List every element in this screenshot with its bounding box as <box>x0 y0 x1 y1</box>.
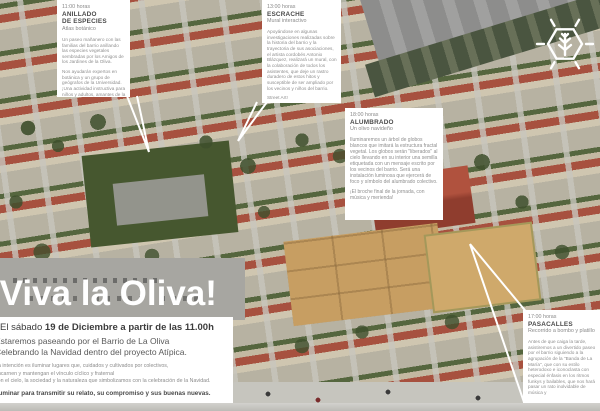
callout-time: 11:00 horas <box>62 4 126 11</box>
callout-anillado-de-especies: 11:00 horas ANILLADO DE ESPECIES Atlas b… <box>57 0 130 97</box>
fine-print-bold-line: Iluminar para transmitir su relato, su c… <box>0 389 228 398</box>
callout-paragraph: ¡El broche final de la jornada, con músi… <box>350 189 439 201</box>
fine-print-line: con el cielo, la sociedad y la naturalez… <box>0 378 228 386</box>
callout-paragraph: Nos ayudarán expertos en botánica y un g… <box>62 69 126 97</box>
callout-pasacalles: 17:00 horas PASACALLES Recorrido a bombo… <box>523 310 600 406</box>
event-info-panel: El sábado 19 de Diciembre a partir de la… <box>0 317 233 405</box>
fine-print-line: encarnen y mantengan el vínculo cíclico … <box>0 371 228 379</box>
callout-time: 13:00 horas <box>267 4 337 11</box>
callout-paragraph: Antes de que caiga la tarde, asistiremos… <box>528 339 596 395</box>
callout-title-line2: DE ESPECIES <box>62 18 126 26</box>
callout-alumbrado: 18:00 horas ALUMBRADO Un olivo navideño … <box>345 108 443 220</box>
callout-title: PASACALLES <box>528 321 596 329</box>
callout-time: 17:00 horas <box>528 314 596 321</box>
event-date-line: El sábado 19 de Diciembre a partir de la… <box>0 322 228 333</box>
event-description-line: Celebrando la Navidad dentro del proyect… <box>0 347 228 358</box>
event-fine-print: La intención es iluminar lugares que, cu… <box>0 363 228 398</box>
callout-title: ESCRACHE <box>267 11 337 19</box>
callout-title: ANILLADO <box>62 11 126 19</box>
fine-print-line: La intención es iluminar lugares que, cu… <box>0 363 228 371</box>
callout-paragraph: Apoyándose en algunas investigaciones re… <box>267 29 337 91</box>
callout-subtitle: Recorrido a bombo y platillo <box>528 328 596 335</box>
callout-subtitle: Mural interactivo <box>267 18 337 25</box>
callout-paragraph: Un paseo mañanero con las familias del b… <box>62 37 126 65</box>
hexagon-tree-logo-icon <box>533 12 597 76</box>
callout-escrache: 13:00 horas ESCRACHE Mural interactivo A… <box>262 0 341 103</box>
event-date-prefix: El sábado <box>0 322 45 333</box>
callout-subtitle: Atlas botánico <box>62 26 126 33</box>
callout-paragraph: Iluminaremos un árbol de globos blancos … <box>350 137 439 185</box>
callout-subtitle: Un olivo navideño <box>350 126 439 133</box>
event-poster: 11:00 horas ANILLADO DE ESPECIES Atlas b… <box>0 0 600 411</box>
photo-bottom-strip <box>0 403 600 411</box>
callout-time: 18:00 horas <box>350 112 439 119</box>
event-description-line: Estaremos paseando por el Barrio de La O… <box>0 336 228 347</box>
event-date-bold: 19 de Diciembre a partir de las 11.00h <box>45 322 214 333</box>
callout-paragraph: Street Art! <box>267 95 337 101</box>
poster-title: ¡Viva la Oliva! <box>0 274 217 314</box>
callout-title: ALUMBRADO <box>350 119 439 127</box>
